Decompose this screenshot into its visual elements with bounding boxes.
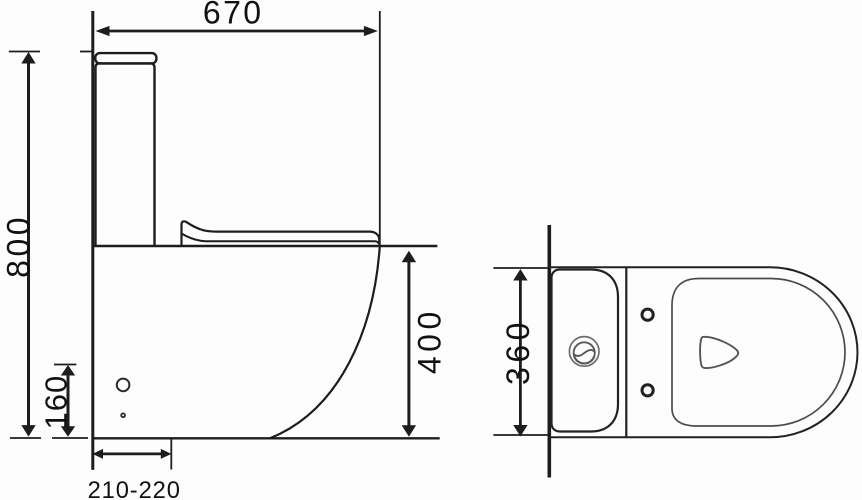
svg-text:160: 160	[39, 375, 74, 430]
svg-text:800: 800	[1, 214, 37, 278]
svg-text:670: 670	[203, 0, 264, 31]
svg-text:360: 360	[500, 318, 536, 385]
svg-text:400: 400	[412, 307, 448, 374]
svg-text:210-220: 210-220	[88, 478, 181, 500]
